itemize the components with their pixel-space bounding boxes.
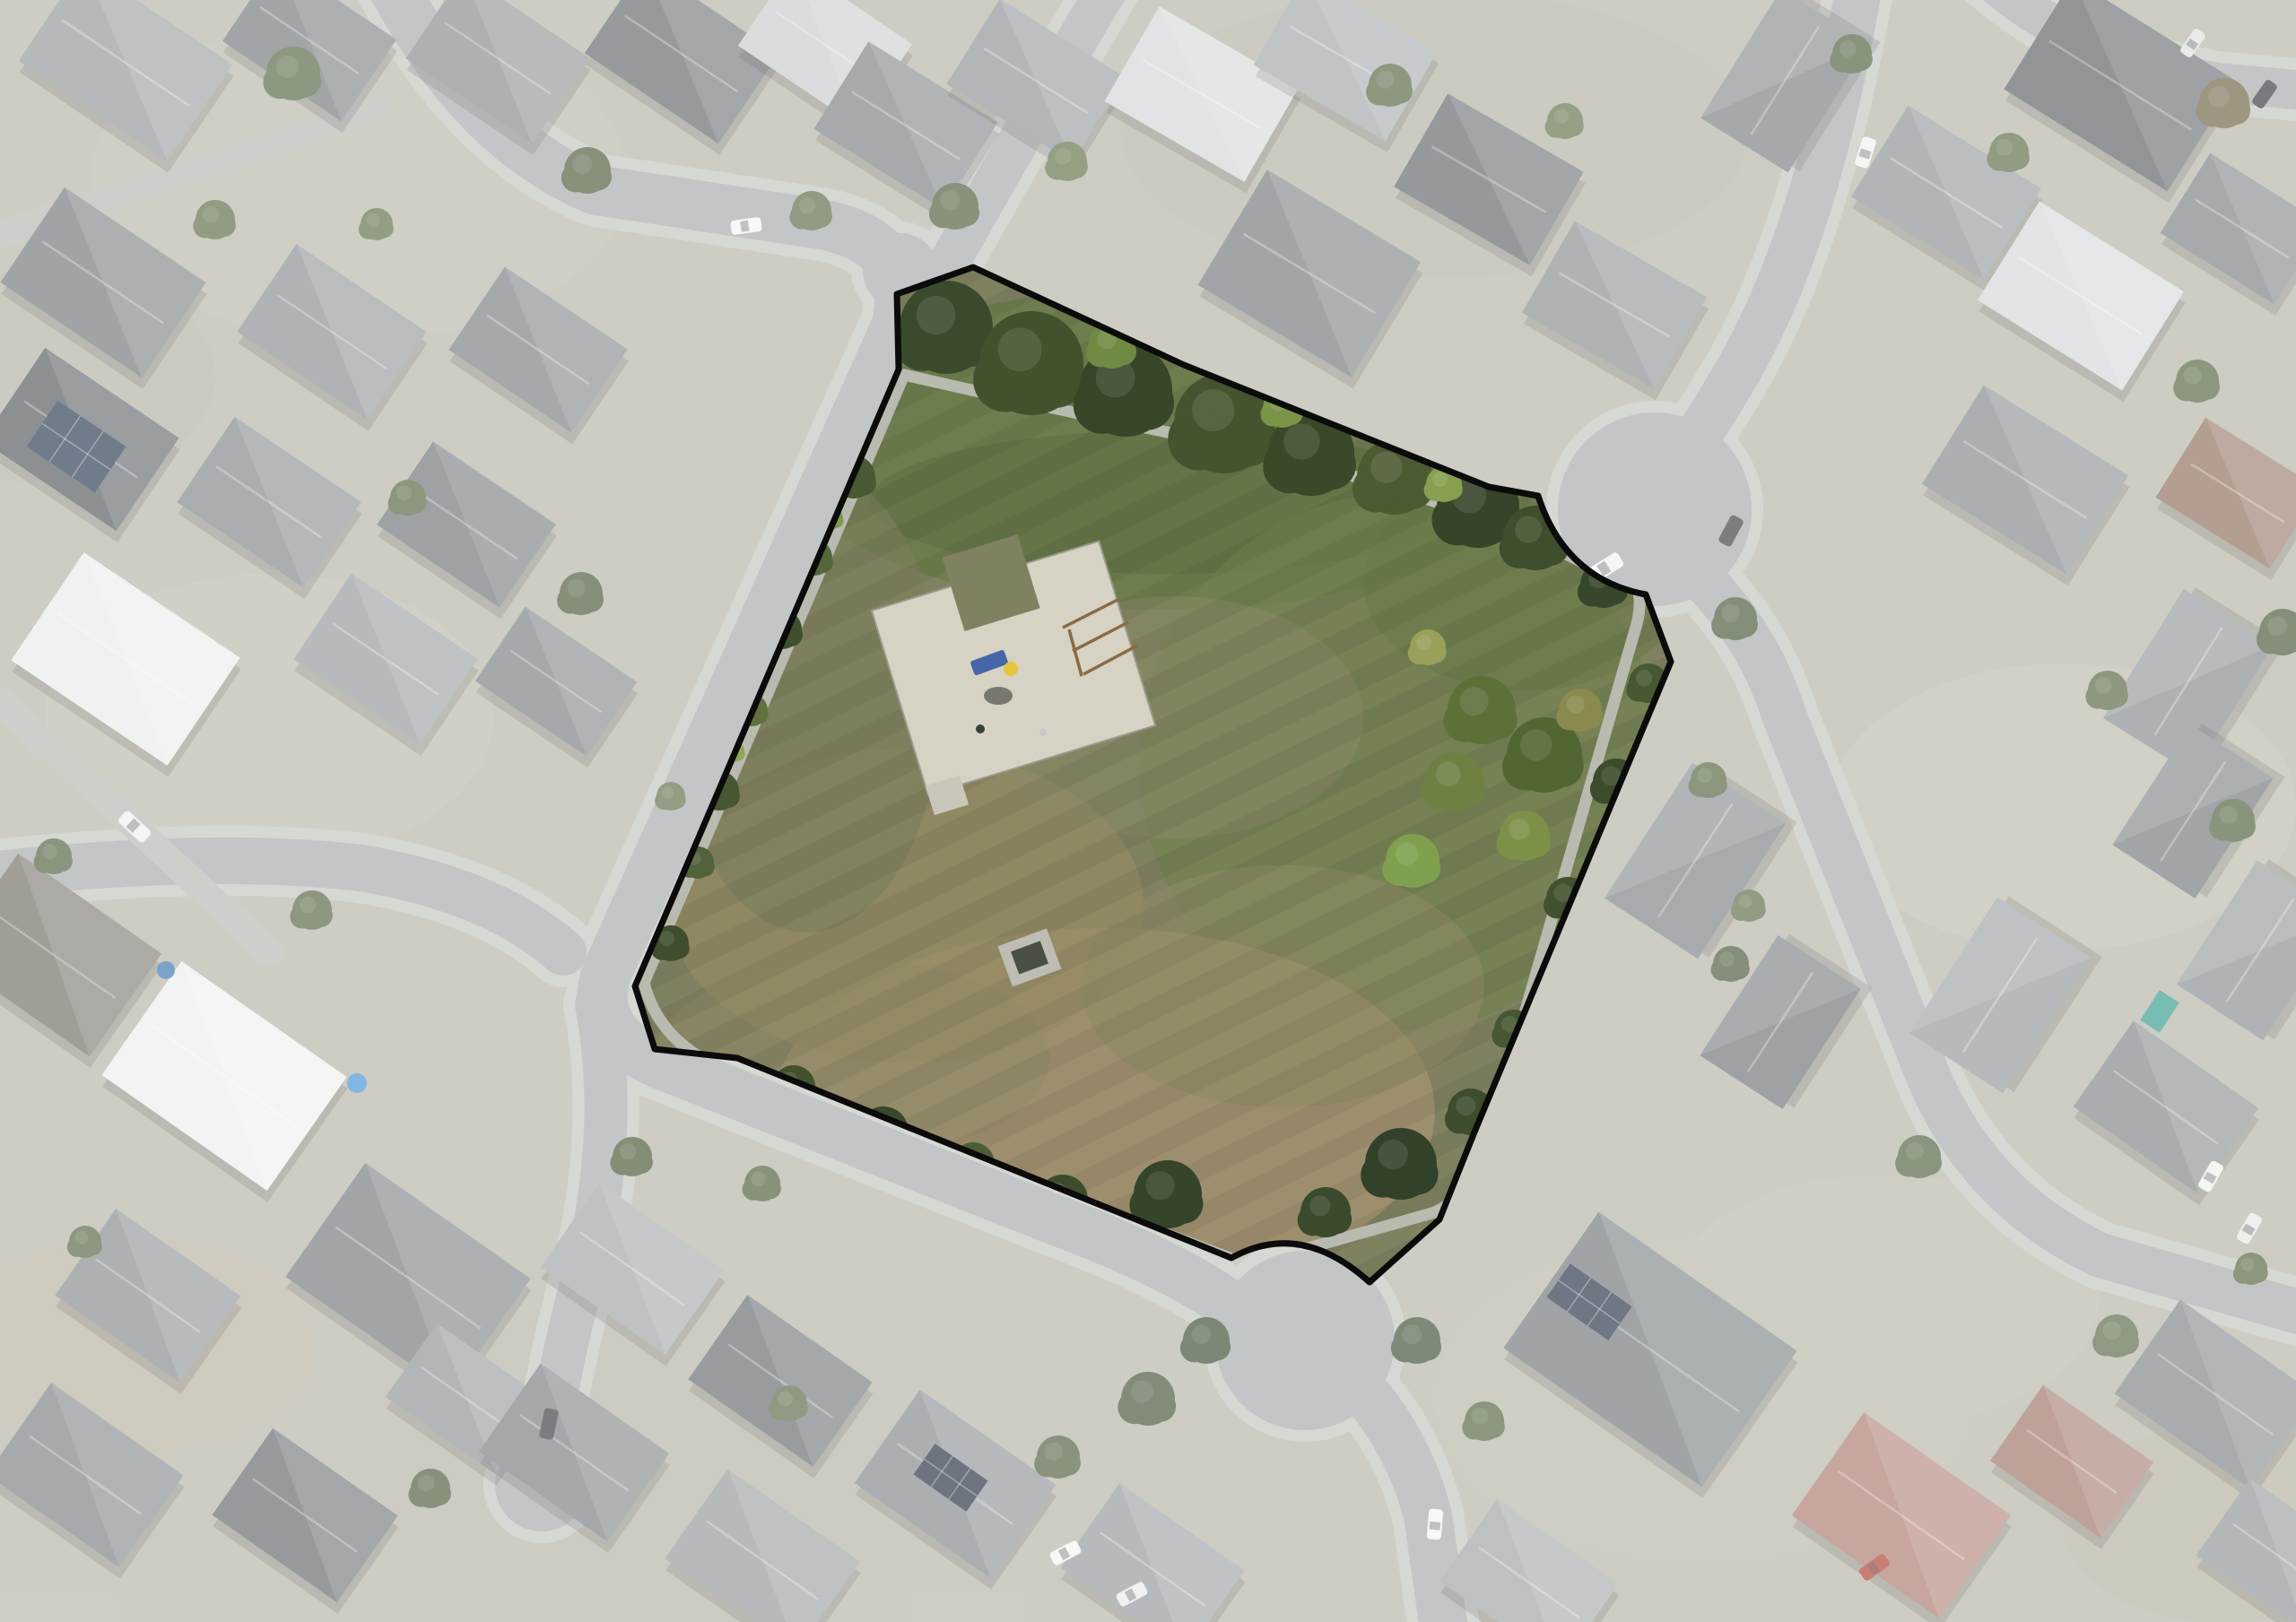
- aerial-basemap[interactable]: [0, 0, 2296, 1622]
- play-structure-roof: [1004, 662, 1018, 676]
- aerial-map-view[interactable]: [0, 0, 2296, 1622]
- playground-item: [976, 724, 985, 733]
- play-structure-shadow: [984, 687, 1013, 705]
- playground-item: [1039, 729, 1047, 736]
